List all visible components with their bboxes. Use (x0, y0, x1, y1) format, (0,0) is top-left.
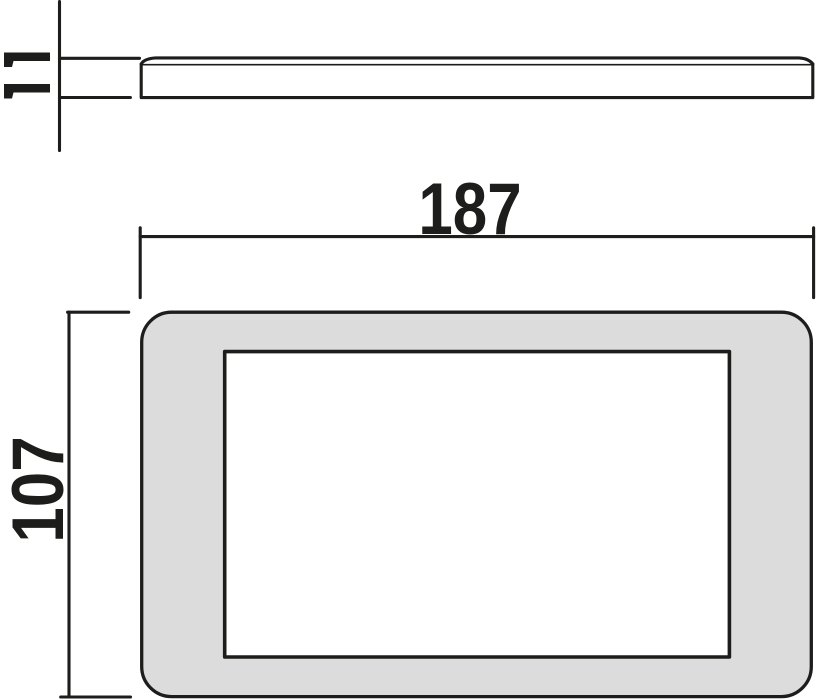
svg-text:107: 107 (0, 436, 79, 543)
svg-text:187: 187 (418, 169, 521, 250)
